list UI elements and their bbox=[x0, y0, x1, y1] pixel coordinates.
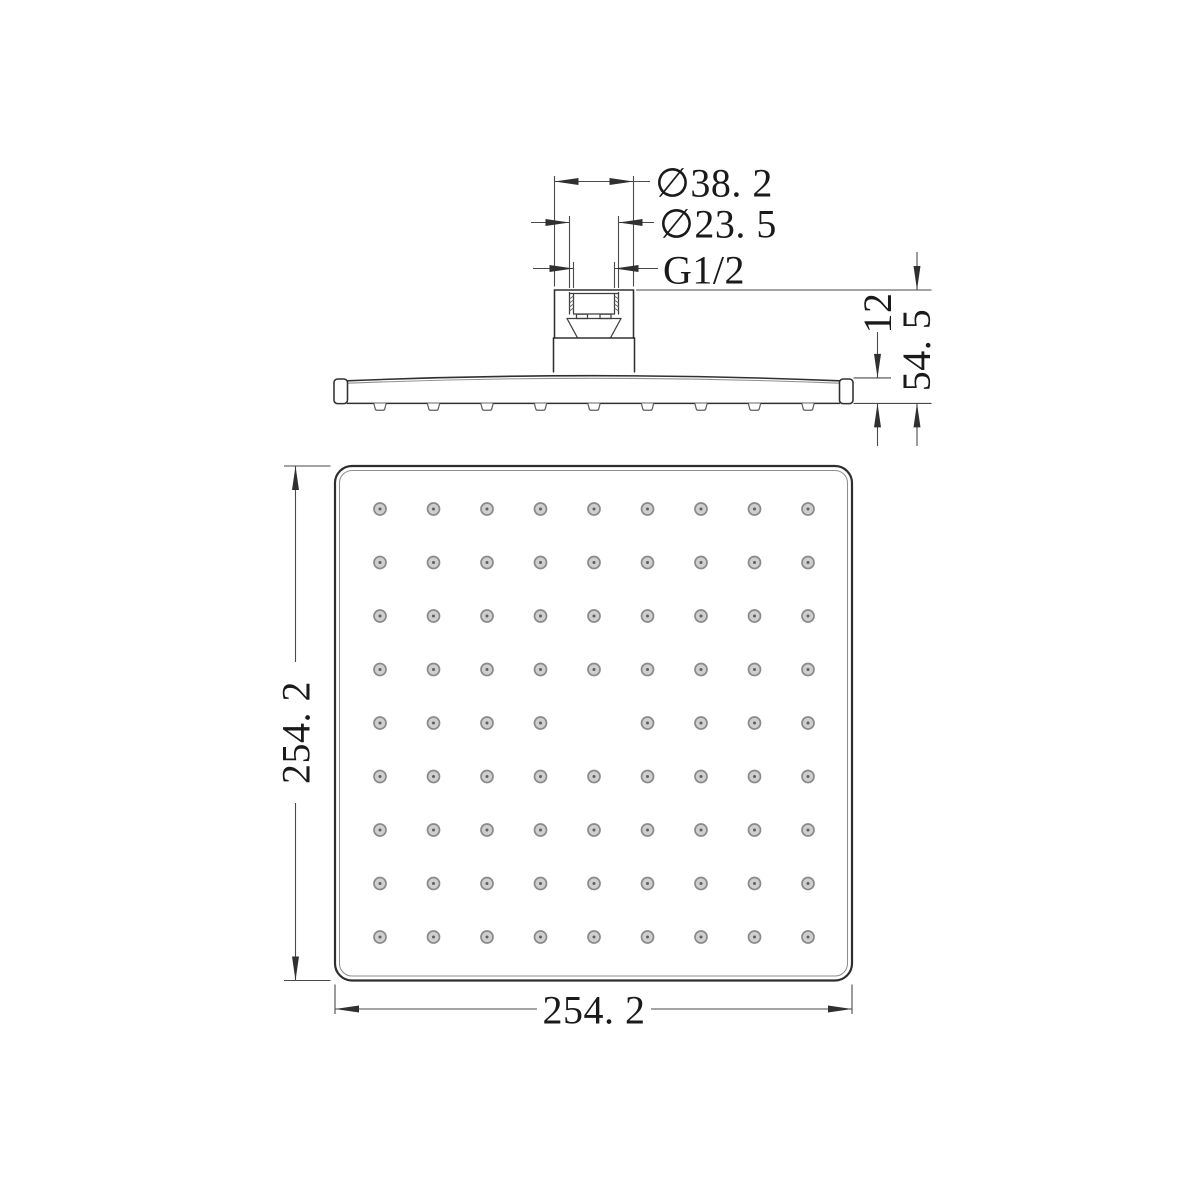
bore-washer bbox=[600, 314, 611, 318]
nozzle-hole-center bbox=[807, 775, 810, 778]
nozzle-hole-center bbox=[753, 668, 756, 671]
plate-rim-right bbox=[840, 379, 854, 404]
dimension-face-height: 254. 2 bbox=[274, 466, 331, 981]
nozzle-hole-center bbox=[700, 615, 703, 618]
nozzle-hole-center bbox=[379, 775, 382, 778]
plate-top-surface-inner bbox=[348, 378, 839, 383]
nozzle-hole-center bbox=[539, 882, 542, 885]
nozzle-hole-center bbox=[700, 508, 703, 511]
nozzle-hole-center bbox=[486, 508, 489, 511]
side-nozzle bbox=[748, 403, 760, 410]
nozzle-hole-center bbox=[807, 829, 810, 832]
nozzle-hole-center bbox=[700, 668, 703, 671]
nozzle-hole-center bbox=[486, 882, 489, 885]
nozzle-hole-center bbox=[753, 508, 756, 511]
side-nozzles bbox=[374, 403, 814, 410]
nozzle-hole-center bbox=[379, 722, 382, 725]
arrowhead bbox=[874, 354, 881, 378]
nozzle-hole-center bbox=[486, 561, 489, 564]
arrowhead bbox=[555, 178, 579, 185]
plate-rim-left bbox=[334, 379, 348, 404]
nozzle-hole-center bbox=[646, 775, 649, 778]
funnel-slant bbox=[611, 319, 622, 338]
nozzle-hole-center bbox=[539, 722, 542, 725]
nozzle-hole-center bbox=[646, 508, 649, 511]
arrowhead bbox=[619, 219, 643, 226]
nozzle-hole-center bbox=[700, 561, 703, 564]
side-nozzle bbox=[802, 403, 814, 410]
thread-bore bbox=[570, 293, 619, 319]
nozzle-hole-center bbox=[807, 508, 810, 511]
nozzle-hole-center bbox=[379, 882, 382, 885]
plate-face-outline bbox=[335, 466, 852, 981]
nozzle-hole-center bbox=[539, 561, 542, 564]
nozzle-hole-center bbox=[700, 829, 703, 832]
nozzle-hole-center bbox=[539, 775, 542, 778]
nozzle-hole-center bbox=[432, 775, 435, 778]
nozzle-hole-center bbox=[593, 829, 596, 832]
dim-label-thread-outer-diameter: ∅23. 5 bbox=[659, 202, 777, 247]
nozzle-hole-center bbox=[379, 829, 382, 832]
nozzle-hole-center bbox=[432, 829, 435, 832]
nozzle-hole-center bbox=[432, 722, 435, 725]
nozzle-hole-center bbox=[432, 936, 435, 939]
nozzle-hole-center bbox=[700, 882, 703, 885]
nozzle-hole-center bbox=[807, 882, 810, 885]
nozzle-hole-center bbox=[593, 615, 596, 618]
nozzle-hole-center bbox=[539, 615, 542, 618]
nozzle-hole-center bbox=[807, 722, 810, 725]
nozzle-hole-center bbox=[593, 936, 596, 939]
arrowhead bbox=[914, 403, 921, 427]
nozzle-hole-center bbox=[539, 668, 542, 671]
nozzle-hole-center bbox=[379, 668, 382, 671]
nozzle-hole-center bbox=[753, 561, 756, 564]
technical-drawing: ∅38. 2 ∅23. 5 G1/2 12 54. 5 bbox=[0, 0, 1200, 1200]
nozzle-hole-center bbox=[486, 829, 489, 832]
bottom-view bbox=[335, 466, 852, 981]
arrowhead bbox=[828, 1006, 852, 1013]
nozzle-hole-center bbox=[753, 936, 756, 939]
nozzle-hole-center bbox=[646, 668, 649, 671]
nozzle-hole-center bbox=[646, 829, 649, 832]
nozzle-hole-center bbox=[486, 775, 489, 778]
nozzle-hole-center bbox=[593, 668, 596, 671]
nozzle-hole-center bbox=[646, 561, 649, 564]
nozzle-hole-center bbox=[593, 882, 596, 885]
nozzle-hole-center bbox=[432, 668, 435, 671]
nozzle-hole-center bbox=[753, 882, 756, 885]
shower-plate-side bbox=[334, 376, 853, 411]
drawing-page: ∅38. 2 ∅23. 5 G1/2 12 54. 5 bbox=[0, 0, 1200, 1200]
nozzle-hole-center bbox=[379, 508, 382, 511]
nozzle-hole-center bbox=[646, 936, 649, 939]
side-nozzle bbox=[481, 403, 493, 410]
nozzle-hole-center bbox=[379, 936, 382, 939]
nozzle-hole-center bbox=[379, 615, 382, 618]
nozzle-hole-center bbox=[379, 561, 382, 564]
bore-washer bbox=[577, 314, 588, 318]
nozzle-hole-center bbox=[807, 615, 810, 618]
dimension-face-width: 254. 2 bbox=[335, 985, 852, 1033]
thread-hatching bbox=[570, 296, 619, 311]
stem-base bbox=[554, 338, 635, 372]
nozzle-hole-center bbox=[432, 508, 435, 511]
nozzle-hole-center bbox=[486, 615, 489, 618]
nozzle-hole-center bbox=[807, 936, 810, 939]
nozzle-hole-center bbox=[432, 561, 435, 564]
side-nozzle bbox=[427, 403, 439, 410]
side-nozzle bbox=[534, 403, 546, 410]
dim-label-face-width: 254. 2 bbox=[543, 988, 646, 1033]
nozzle-hole-center bbox=[646, 882, 649, 885]
nozzle-hole-center bbox=[593, 508, 596, 511]
side-view bbox=[334, 290, 853, 410]
arrowhead bbox=[914, 266, 921, 290]
nozzle-hole-center bbox=[807, 561, 810, 564]
nozzle-hole-center bbox=[486, 722, 489, 725]
nozzle-hole-center bbox=[432, 615, 435, 618]
nozzle-hole-center bbox=[539, 829, 542, 832]
arrowhead bbox=[874, 403, 881, 427]
dim-label-face-height: 254. 2 bbox=[274, 681, 319, 784]
nozzle-hole-center bbox=[753, 722, 756, 725]
dimension-thread-spec: G1/2 bbox=[533, 248, 745, 293]
side-nozzle bbox=[374, 403, 386, 410]
arrowhead bbox=[292, 957, 299, 981]
nozzle-hole-center bbox=[646, 615, 649, 618]
nozzle-hole-center bbox=[432, 882, 435, 885]
nozzle-hole-center bbox=[486, 936, 489, 939]
nozzle-hole-center bbox=[700, 936, 703, 939]
side-nozzle bbox=[695, 403, 707, 410]
stem-funnel bbox=[567, 319, 621, 338]
nozzle-hole-center bbox=[753, 829, 756, 832]
arrowhead bbox=[335, 1006, 359, 1013]
arrowhead bbox=[610, 178, 634, 185]
nozzle-hole-center bbox=[593, 561, 596, 564]
arrowhead bbox=[292, 466, 299, 490]
dim-label-outer-diameter: ∅38. 2 bbox=[655, 161, 773, 206]
nozzle-hole-center bbox=[539, 936, 542, 939]
nozzle-hole-center bbox=[807, 668, 810, 671]
side-nozzle bbox=[641, 403, 653, 410]
nozzle-hole-center bbox=[646, 722, 649, 725]
nozzle-hole-center bbox=[593, 775, 596, 778]
nozzle-hole-center bbox=[700, 722, 703, 725]
stem-connector bbox=[554, 290, 635, 372]
funnel-slant bbox=[567, 319, 578, 338]
nozzle-hole-center bbox=[753, 615, 756, 618]
side-nozzle bbox=[588, 403, 600, 410]
arrowhead bbox=[546, 219, 570, 226]
dim-label-thread-spec: G1/2 bbox=[663, 248, 745, 293]
nozzle-hole-center bbox=[753, 775, 756, 778]
nozzle-hole-center bbox=[486, 668, 489, 671]
nozzle-hole-center bbox=[700, 775, 703, 778]
nozzle-hole-center bbox=[539, 508, 542, 511]
dim-label-total-height: 54. 5 bbox=[894, 309, 939, 392]
